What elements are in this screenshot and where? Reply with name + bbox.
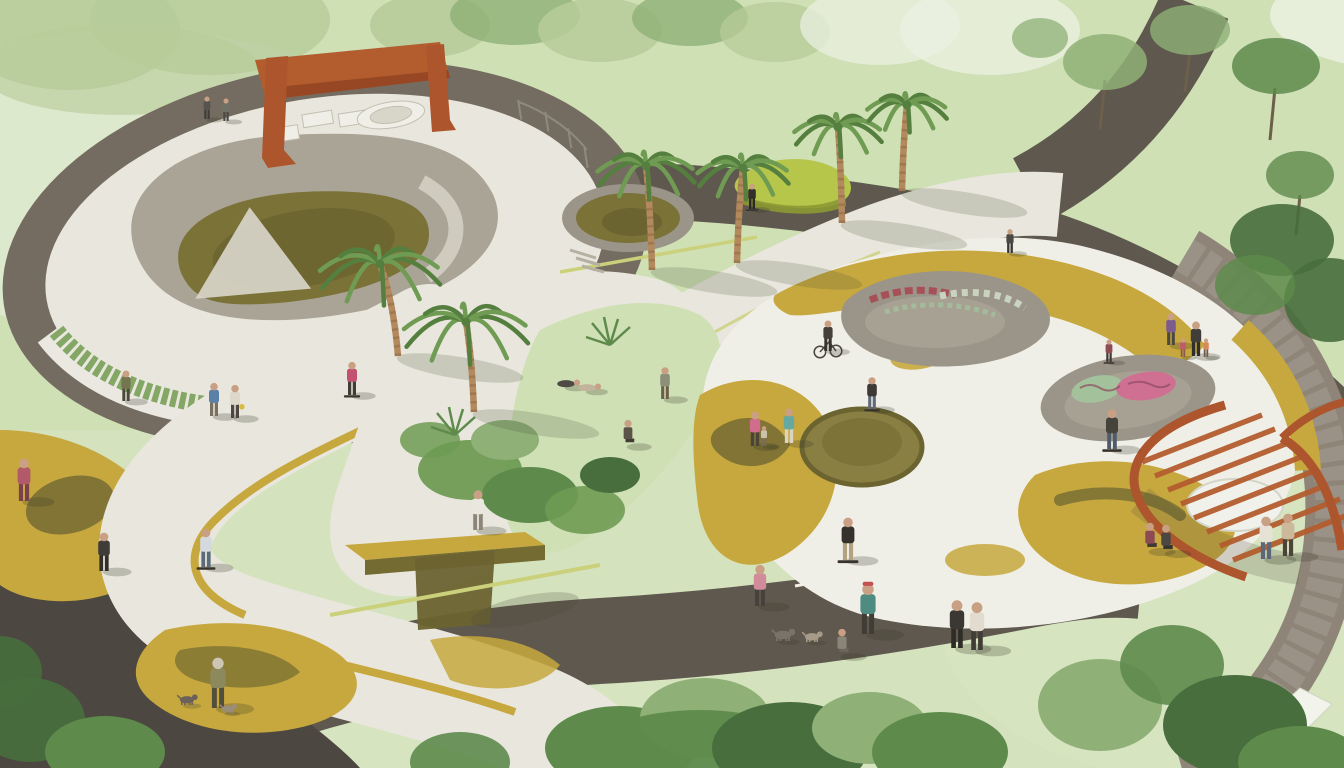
figure-leg xyxy=(785,429,788,443)
figure-leg xyxy=(1261,541,1265,559)
figure-torso xyxy=(210,668,225,688)
skateboard xyxy=(1102,449,1122,452)
figure-torso xyxy=(1106,418,1118,434)
palm-crown-center xyxy=(903,101,912,110)
figure-leg xyxy=(764,438,766,446)
skateboard xyxy=(838,560,859,563)
figure-leg xyxy=(201,551,205,567)
figure-torso xyxy=(1260,525,1273,542)
figure-head xyxy=(595,384,601,390)
figure-torso xyxy=(950,610,964,629)
figure-leg xyxy=(1110,353,1112,362)
figure-leg xyxy=(1197,342,1200,356)
figure-leg xyxy=(227,112,229,121)
figure-head xyxy=(1192,322,1200,330)
figure-leg xyxy=(951,628,956,648)
figure-leg xyxy=(207,551,211,567)
figure-leg xyxy=(978,630,983,650)
figure-leg xyxy=(1172,332,1175,345)
figure-leg xyxy=(1007,243,1009,253)
figure-head xyxy=(785,409,793,417)
skateboard xyxy=(344,395,360,397)
figure-torso xyxy=(1180,342,1186,349)
figure-head xyxy=(204,96,209,101)
figure-leg xyxy=(1192,342,1195,356)
figure-head xyxy=(838,629,846,637)
figure-head xyxy=(749,184,755,190)
figure-head xyxy=(972,602,983,613)
figure-head xyxy=(1261,517,1271,527)
shrub xyxy=(1215,255,1295,315)
figure-torso xyxy=(1166,320,1176,333)
tree-canopy xyxy=(1012,18,1068,58)
figure-leg xyxy=(127,388,130,401)
figure-leg xyxy=(1167,332,1170,345)
skateboard xyxy=(864,409,880,411)
figure-leg xyxy=(353,381,356,395)
shrub xyxy=(545,486,625,534)
figure-cap xyxy=(863,582,874,586)
figure-torso xyxy=(223,103,230,112)
figure-leg xyxy=(790,429,793,443)
figure-torso xyxy=(204,101,211,110)
figure-torso xyxy=(748,189,756,199)
palm-crown-center xyxy=(739,164,748,173)
dog-head xyxy=(192,694,198,700)
graffiti-bowl-main xyxy=(841,271,1050,367)
figure-shadow xyxy=(841,653,867,661)
dog-head xyxy=(789,629,796,636)
figure-leg xyxy=(749,199,751,209)
figure-leg xyxy=(1011,243,1013,253)
skatepark-rendering xyxy=(0,0,1344,768)
figure-body xyxy=(557,380,575,387)
figure-head xyxy=(100,533,109,542)
figure-head xyxy=(1106,339,1111,344)
figure-torso xyxy=(1191,329,1201,343)
skateboard xyxy=(746,209,758,211)
figure-torso xyxy=(624,427,633,439)
figure-leg xyxy=(862,613,867,634)
figure-torso xyxy=(823,327,832,339)
pump-mound xyxy=(802,409,922,485)
dog-head xyxy=(817,631,823,637)
bowl-floor xyxy=(865,296,1005,348)
figure-head xyxy=(755,565,764,574)
figure-torso xyxy=(18,467,31,484)
figure-head xyxy=(574,380,580,386)
figure-leg xyxy=(215,402,218,416)
figure-shadow xyxy=(1165,550,1192,558)
figure-torso xyxy=(1145,531,1154,544)
figure-head xyxy=(1283,514,1293,524)
figure-torso xyxy=(1106,344,1113,353)
figure-torso xyxy=(472,499,484,515)
figure-leg xyxy=(755,589,759,606)
figure-head xyxy=(223,98,228,103)
figure-leg xyxy=(761,589,765,606)
figure-leg xyxy=(208,110,210,119)
figure-head xyxy=(1007,229,1012,234)
figure-leg xyxy=(210,402,213,416)
figure-leg xyxy=(231,404,234,418)
figure-leg xyxy=(1183,349,1185,357)
figure-torso xyxy=(784,416,794,430)
figure-leg xyxy=(843,542,847,560)
figure-head xyxy=(1162,525,1170,533)
tree-canopy xyxy=(1266,151,1334,199)
figure-head xyxy=(868,377,875,384)
figure-torso xyxy=(660,374,670,387)
figure-leg xyxy=(1283,538,1287,556)
figure-torso xyxy=(1282,522,1295,539)
figure-leg xyxy=(1267,541,1271,559)
shrub xyxy=(580,457,640,493)
figure-leg xyxy=(204,110,206,119)
figure-leg xyxy=(348,381,351,395)
figure-torso xyxy=(837,637,846,649)
figure-torso xyxy=(867,384,877,397)
figure-leg xyxy=(99,555,103,571)
tree-canopy xyxy=(1063,34,1147,90)
figure-torso xyxy=(750,419,760,433)
figure-head xyxy=(474,490,483,499)
figure-head xyxy=(762,426,767,431)
palm-crown-center xyxy=(462,318,471,327)
figure-head xyxy=(624,420,631,427)
figure-torso xyxy=(842,526,855,543)
figure-leg xyxy=(105,555,109,571)
figure-head xyxy=(348,362,356,370)
figure-leg xyxy=(19,483,23,501)
figure-leg xyxy=(212,687,217,708)
figure-head xyxy=(19,459,29,469)
figure-leg xyxy=(869,613,874,634)
palm-crown-center xyxy=(834,123,843,132)
figure-head xyxy=(202,529,211,538)
figure-leg xyxy=(1289,538,1293,556)
figure-torso xyxy=(121,377,130,389)
shrub xyxy=(400,422,460,458)
figure-leg xyxy=(122,388,125,401)
figure-torso xyxy=(230,392,240,405)
figure-head xyxy=(1181,338,1185,342)
figure-leg xyxy=(751,432,754,446)
figure-head xyxy=(231,385,239,393)
figure-leg xyxy=(666,386,669,399)
skateboard xyxy=(1103,362,1114,364)
figure-head xyxy=(661,367,668,374)
figure-leg xyxy=(223,112,225,121)
figure-torso xyxy=(98,541,110,556)
figure-leg xyxy=(756,432,759,446)
palm-crown-center xyxy=(642,162,651,171)
figure-leg xyxy=(971,630,976,650)
figure-leg xyxy=(849,542,853,560)
figure-leg xyxy=(762,438,764,446)
tree-canopy xyxy=(1150,5,1230,55)
figure-body xyxy=(578,384,596,391)
figure-leg xyxy=(1181,349,1183,357)
figure-leg xyxy=(958,628,963,648)
palm-crown-center xyxy=(376,260,385,269)
figure-leg xyxy=(25,483,29,501)
figure-leg xyxy=(829,338,832,351)
figure-head xyxy=(825,321,832,328)
figure-bag xyxy=(239,404,245,410)
figure-leg xyxy=(1106,353,1108,362)
figure-head xyxy=(123,371,130,378)
figure-leg xyxy=(236,404,239,418)
figure-torso xyxy=(761,430,767,438)
mound-top xyxy=(822,418,902,466)
figure-leg xyxy=(1204,349,1206,357)
figure-head xyxy=(1167,313,1174,320)
figure-head xyxy=(1146,523,1154,531)
figure-leg xyxy=(473,514,477,531)
dog-head xyxy=(232,704,237,709)
figure-head xyxy=(1108,409,1117,418)
figure-leg xyxy=(479,514,483,531)
figure-head xyxy=(843,518,853,528)
figure-torso xyxy=(1161,533,1170,546)
tree-canopy xyxy=(1232,38,1320,94)
figure-leg xyxy=(873,396,876,409)
figure-leg xyxy=(1113,433,1117,450)
figure-head xyxy=(210,383,218,391)
figure-leg xyxy=(1107,433,1111,450)
figure-leg xyxy=(868,396,871,409)
figure-torso xyxy=(200,537,212,552)
figure-leg xyxy=(1206,349,1208,357)
figure-shadow xyxy=(627,443,652,451)
figure-head xyxy=(1204,338,1208,342)
skateboard xyxy=(197,567,216,570)
skatepark-rendering-stage xyxy=(0,0,1344,768)
figure-leg xyxy=(753,199,755,209)
figure-head xyxy=(212,658,223,669)
figure-torso xyxy=(209,390,219,403)
figure-torso xyxy=(1006,234,1013,243)
figure-head xyxy=(751,412,759,420)
figure-leg xyxy=(661,386,664,399)
bank-small xyxy=(945,544,1025,576)
figure-leg xyxy=(824,338,827,351)
figure-head xyxy=(952,600,963,611)
figure-torso xyxy=(347,369,357,382)
figure-torso xyxy=(754,573,766,589)
figure-torso xyxy=(860,594,875,614)
figure-torso xyxy=(1203,342,1209,349)
figure-torso xyxy=(970,612,984,631)
